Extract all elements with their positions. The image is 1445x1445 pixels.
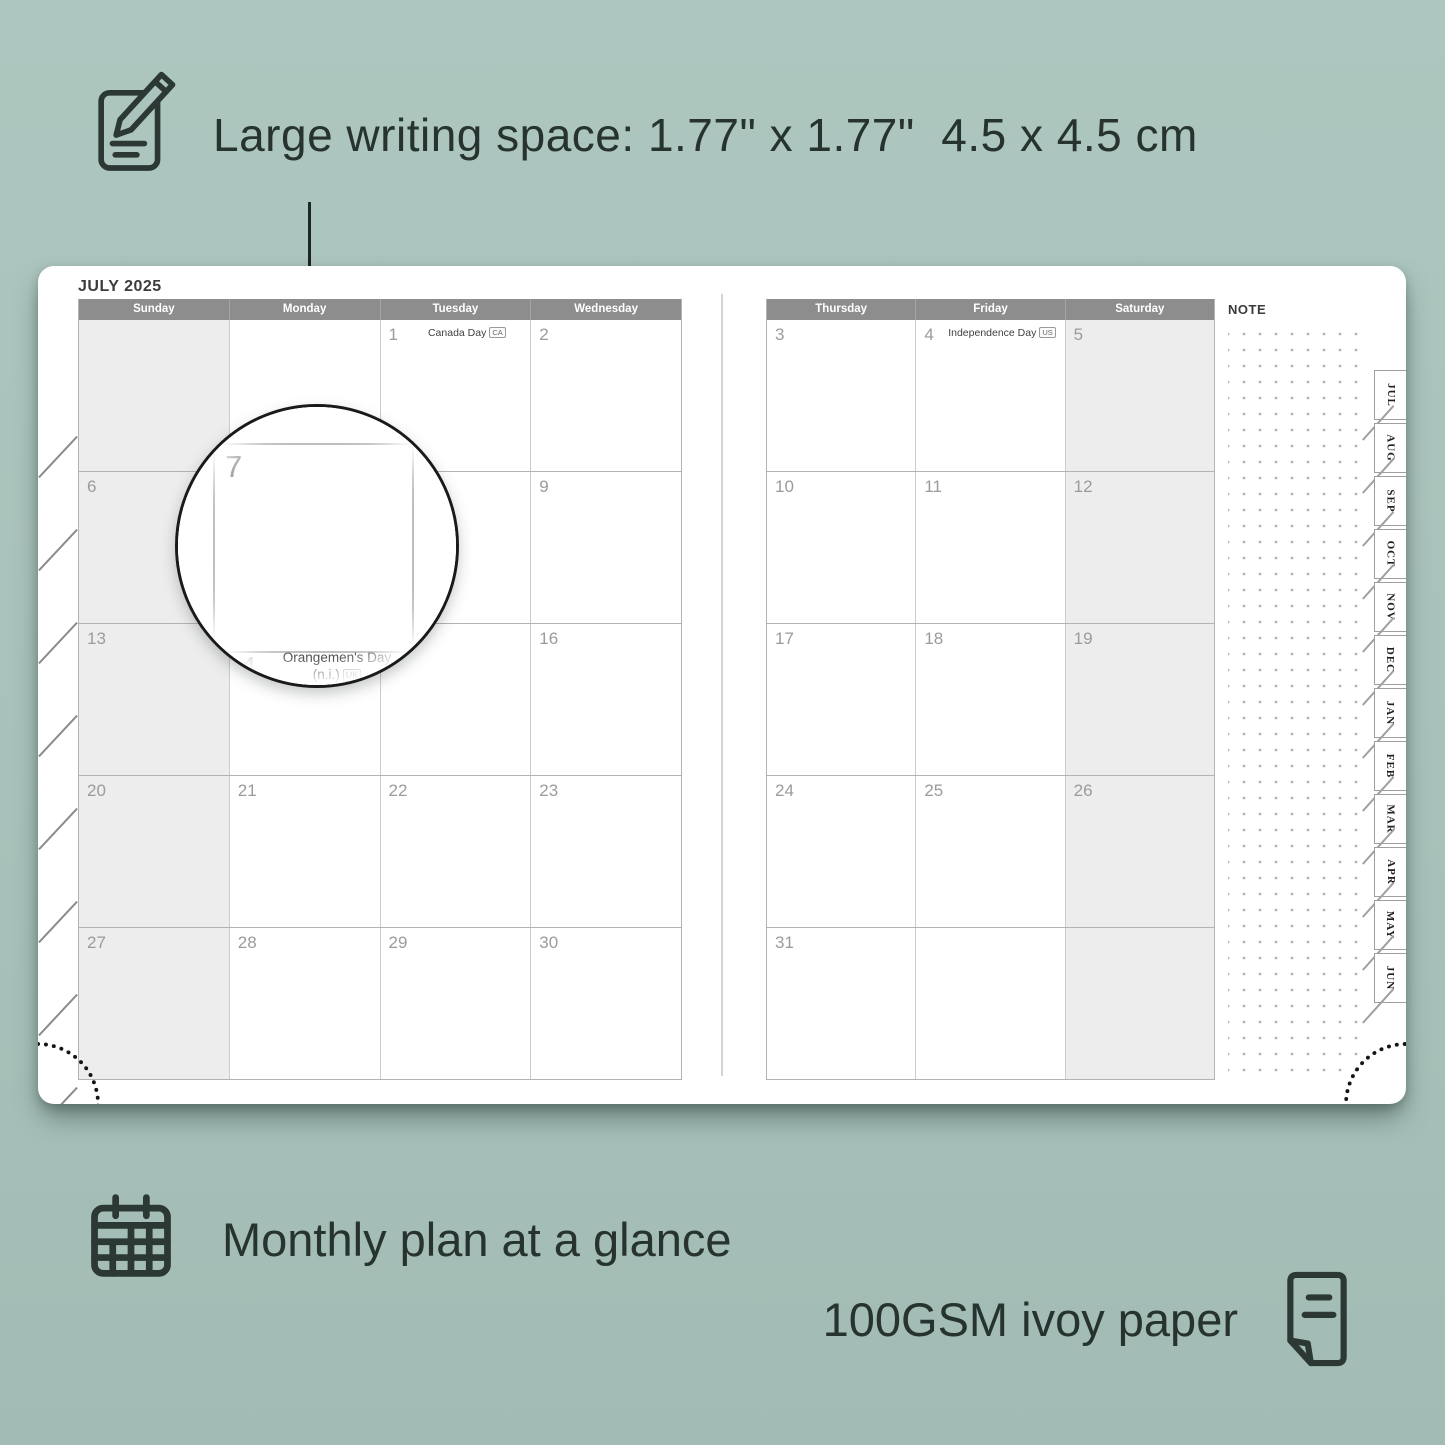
day-number: 29 (389, 933, 408, 953)
calendar-cell: 22 (380, 776, 531, 927)
magnifier-circle: 7 14 Orangemen's Day (n.i.)UK (175, 404, 459, 688)
calendar-cell: 30 (530, 928, 681, 1079)
day-number: 17 (775, 629, 794, 649)
month-tab-jan: JAN (1374, 688, 1406, 738)
country-badge: US (1039, 327, 1055, 338)
month-tab-mar: MAR (1374, 794, 1406, 844)
page-edge-hatch (38, 622, 78, 664)
page-edge-hatch (38, 529, 78, 571)
month-tab-sep: SEP (1374, 476, 1406, 526)
day-number: 5 (1074, 325, 1083, 345)
calendar-grid-left-page: SundayMondayTuesdayWednesday1Canada DayC… (78, 299, 682, 1080)
day-number: 6 (87, 477, 96, 497)
calendar-icon (83, 1186, 179, 1284)
day-header: Monday (229, 299, 380, 320)
paper-icon (1276, 1268, 1358, 1372)
day-number: 13 (87, 629, 106, 649)
calendar-cell: 23 (530, 776, 681, 927)
page-edge-hatch (38, 994, 78, 1036)
month-tab-feb: FEB (1374, 741, 1406, 791)
day-number: 27 (87, 933, 106, 953)
day-header: Friday (915, 299, 1064, 320)
notepad-pencil-icon (88, 66, 182, 176)
calendar-cell: 3 (767, 320, 915, 471)
page-edge-hatch (38, 715, 78, 757)
month-tab-dec: DEC (1374, 635, 1406, 685)
day-number: 26 (1074, 781, 1093, 801)
calendar-cell: 13 (79, 624, 229, 775)
country-badge: UK (343, 669, 362, 682)
calendar-cell: 20 (79, 776, 229, 927)
day-number: 30 (539, 933, 558, 953)
calendar-cell: 9 (530, 472, 681, 623)
magnified-day-cell: 7 (213, 443, 414, 653)
day-number: 20 (87, 781, 106, 801)
calendar-cell: 21 (229, 776, 380, 927)
note-dot-grid (1228, 324, 1370, 1074)
country-badge: CA (489, 327, 505, 338)
month-tab-jun: JUN (1374, 953, 1406, 1003)
callout-writing-space-text: Large writing space: 1.77" x 1.77" 4.5 x… (213, 108, 1198, 162)
calendar-cell: 4Independence DayUS (915, 320, 1064, 471)
page-edge-hatch (38, 901, 78, 943)
caption-paper: 100GSM ivoy paper (823, 1292, 1238, 1347)
month-title: JULY 2025 (78, 278, 162, 296)
day-number: 3 (775, 325, 784, 345)
calendar-cell: 19 (1065, 624, 1214, 775)
calendar-cell: 28 (229, 928, 380, 1079)
day-header: Tuesday (380, 299, 531, 320)
day-header: Thursday (767, 299, 915, 320)
day-number: 10 (775, 477, 794, 497)
calendar-cell: 18 (915, 624, 1064, 775)
day-number: 19 (1074, 629, 1093, 649)
calendar-cell: 25 (915, 776, 1064, 927)
day-header: Wednesday (530, 299, 681, 320)
calendar-grid-right-page: ThursdayFridaySaturday34Independence Day… (766, 299, 1215, 1080)
calendar-cell: 27 (79, 928, 229, 1079)
calendar-cell (915, 928, 1064, 1079)
note-label: NOTE (1228, 302, 1266, 317)
day-number: 16 (539, 629, 558, 649)
calendar-cell: 24 (767, 776, 915, 927)
day-number: 11 (924, 477, 942, 497)
day-number: 2 (539, 325, 548, 345)
holiday-label: Canada DayCA (407, 327, 528, 341)
calendar-cell: 29 (380, 928, 531, 1079)
calendar-cell: 26 (1065, 776, 1214, 927)
magnified-day-number: 7 (225, 449, 242, 485)
page-gutter-line (721, 294, 723, 1076)
month-tab-jul: JUL (1374, 370, 1406, 420)
day-number: 31 (775, 933, 794, 953)
month-tab-apr: APR (1374, 847, 1406, 897)
day-number: 23 (539, 781, 558, 801)
holiday-label: Independence DayUS (942, 327, 1061, 341)
day-number: 18 (924, 629, 943, 649)
day-number: 25 (924, 781, 943, 801)
calendar-cell: 2 (530, 320, 681, 471)
calendar-cell: 12 (1065, 472, 1214, 623)
month-tab-aug: AUG (1374, 423, 1406, 473)
calendar-cell: 11 (915, 472, 1064, 623)
page-edge-hatch (38, 808, 78, 850)
calendar-cell: 5 (1065, 320, 1214, 471)
day-number: 22 (389, 781, 408, 801)
day-number: 21 (238, 781, 257, 801)
calendar-cell: 17 (767, 624, 915, 775)
calendar-cell (1065, 928, 1214, 1079)
magnified-holiday: Orangemen's Day (n.i.)UK (236, 650, 438, 684)
planner-spread: JULY 2025 SundayMondayTuesdayWednesday1C… (38, 266, 1406, 1104)
day-number: 4 (924, 325, 933, 345)
caption-monthly-plan: Monthly plan at a glance (222, 1212, 732, 1267)
day-header: Sunday (79, 299, 229, 320)
calendar-cell: 10 (767, 472, 915, 623)
calendar-cell: 16 (530, 624, 681, 775)
page-edge-hatch (38, 436, 78, 478)
calendar-cell: 31 (767, 928, 915, 1079)
calendar-cell (79, 320, 229, 471)
month-tab-nov: NOV (1374, 582, 1406, 632)
month-tab-oct: OCT (1374, 529, 1406, 579)
month-tab-may: MAY (1374, 900, 1406, 950)
day-number: 28 (238, 933, 257, 953)
day-header: Saturday (1065, 299, 1214, 320)
day-number: 24 (775, 781, 794, 801)
day-number: 1 (389, 325, 398, 345)
day-number: 12 (1074, 477, 1093, 497)
day-number: 9 (539, 477, 548, 497)
